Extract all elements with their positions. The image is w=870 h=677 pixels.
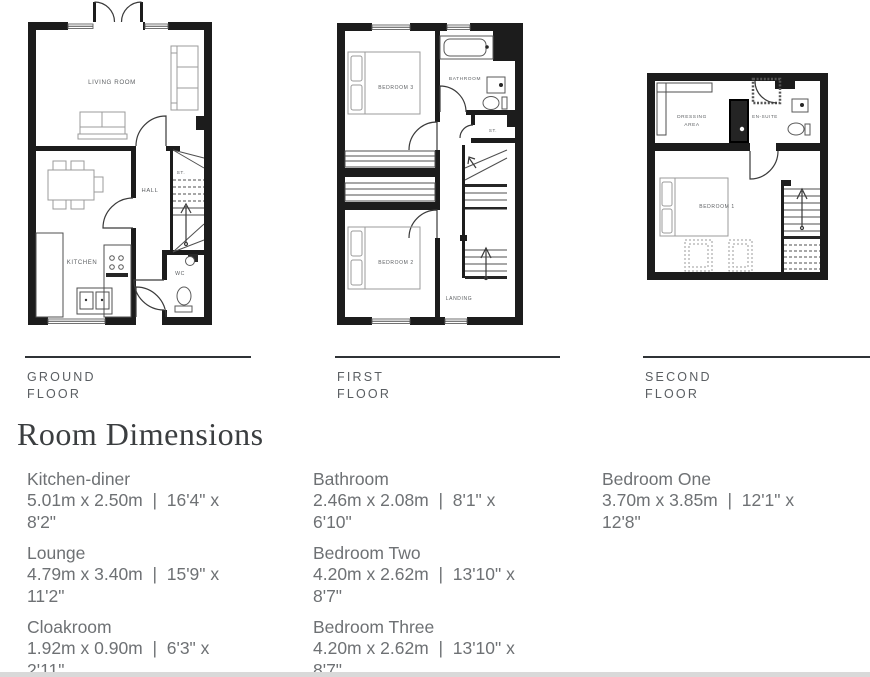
page-title: Room Dimensions	[17, 416, 264, 453]
first-floor-label: FIRST FLOOR	[337, 369, 391, 402]
stairs-icon	[173, 150, 204, 252]
stairs-icon	[460, 145, 507, 280]
room-name: Lounge	[27, 542, 287, 564]
room-label-bathroom: BATHROOM	[449, 76, 481, 82]
room-name: Bedroom One	[602, 468, 862, 490]
door-arcs	[750, 151, 778, 179]
basin-icon	[792, 99, 808, 112]
room-label-ensuite: EN-SUITE	[752, 114, 778, 119]
sink-unit-icon	[77, 288, 112, 314]
room-size: 5.01m x 2.50m | 16'4" x	[27, 490, 287, 512]
bed-icon	[348, 52, 420, 114]
room-size: 6'10"	[313, 512, 583, 534]
room-size: 4.20m x 2.62m | 13'10" x	[313, 638, 583, 660]
room-dimension-entry: Bathroom 2.46m x 2.08m | 8'1" x 6'10"	[313, 468, 583, 533]
dimensions-column-3: Bedroom One 3.70m x 3.85m | 12'1" x 12'8…	[602, 468, 862, 542]
french-doors-icon	[93, 2, 143, 22]
room-size: 4.20m x 2.62m | 13'10" x	[313, 564, 583, 586]
floor-label-line: FLOOR	[645, 386, 712, 403]
room-label-bedroom3: BEDROOM 3	[378, 85, 413, 91]
toilet-icon	[483, 97, 507, 110]
floor-label-line: SECOND	[645, 369, 712, 386]
floor-label-line: FIRST	[337, 369, 391, 386]
page-edge-bar	[0, 672, 870, 677]
basin-icon	[186, 254, 199, 266]
basin-icon	[487, 77, 505, 93]
floor-label-line: GROUND	[27, 369, 96, 386]
room-name: Cloakroom	[27, 616, 287, 638]
furniture-icon	[685, 240, 752, 271]
floorplan-page: LIVING ROOM HALL ST. KITCHEN WC	[0, 0, 870, 677]
toilet-icon	[788, 123, 810, 135]
room-label-dressing-2: AREA	[684, 122, 700, 128]
second-floor-plan: DRESSING AREA EN-SUITE BEDROOM 1	[645, 65, 830, 285]
room-name: Bathroom	[313, 468, 583, 490]
room-label-living: LIVING ROOM	[88, 79, 136, 86]
room-label-hall: HALL	[142, 188, 159, 194]
room-dimension-entry: Bedroom Two 4.20m x 2.62m | 13'10" x 8'7…	[313, 542, 583, 607]
stairs-icon	[781, 183, 820, 272]
room-name: Bedroom Two	[313, 542, 583, 564]
room-size: 11'2"	[27, 586, 287, 608]
second-floor-rule	[643, 356, 870, 358]
first-floor-rule	[335, 356, 560, 358]
room-label-bedroom2: BEDROOM 2	[378, 260, 413, 266]
room-label-store: ST.	[489, 128, 497, 133]
dining-table-icon	[48, 161, 103, 209]
window-icon	[48, 24, 168, 324]
first-floor-plan: BEDROOM 3 BATHROOM ST. BEDROOM 2 LANDING	[335, 10, 525, 335]
room-name: Bedroom Three	[313, 616, 583, 638]
room-label-wc: WC	[175, 271, 185, 277]
room-label-store: ST.	[177, 170, 186, 176]
bathtub-icon	[440, 36, 493, 59]
room-label-kitchen: KITCHEN	[67, 260, 98, 266]
room-size: 3.70m x 3.85m | 12'1" x	[602, 490, 862, 512]
cupboard-icon	[730, 100, 748, 142]
room-dimension-entry: Kitchen-diner 5.01m x 2.50m | 16'4" x 8'…	[27, 468, 287, 533]
sofa-icon	[171, 46, 198, 110]
room-size: 1.92m x 0.90m | 6'3" x	[27, 638, 287, 660]
dimensions-column-2: Bathroom 2.46m x 2.08m | 8'1" x 6'10" Be…	[313, 468, 583, 677]
floor-label-line: FLOOR	[27, 386, 96, 403]
dimensions-column-1: Kitchen-diner 5.01m x 2.50m | 16'4" x 8'…	[27, 468, 287, 677]
room-label-bedroom1: BEDROOM 1	[699, 204, 734, 210]
room-dimension-entry: Lounge 4.79m x 3.40m | 15'9" x 11'2"	[27, 542, 287, 607]
room-size: 2.46m x 2.08m | 8'1" x	[313, 490, 583, 512]
room-dimension-entry: Cloakroom 1.92m x 0.90m | 6'3" x 2'11"	[27, 616, 287, 677]
ground-floor-plan: LIVING ROOM HALL ST. KITCHEN WC	[20, 0, 220, 335]
room-name: Kitchen-diner	[27, 468, 287, 490]
ground-floor-rule	[25, 356, 251, 358]
kitchen-counter-icon	[36, 233, 131, 317]
room-size: 4.79m x 3.40m | 15'9" x	[27, 564, 287, 586]
room-dimension-entry: Bedroom One 3.70m x 3.85m | 12'1" x 12'8…	[602, 468, 862, 533]
room-size: 8'2"	[27, 512, 287, 534]
room-dimension-entry: Bedroom Three 4.20m x 2.62m | 13'10" x 8…	[313, 616, 583, 677]
second-floor-label: SECOND FLOOR	[645, 369, 712, 402]
room-size: 12'8"	[602, 512, 862, 534]
room-label-dressing-1: DRESSING	[677, 114, 707, 120]
ground-floor-label: GROUND FLOOR	[27, 369, 96, 402]
room-label-landing: LANDING	[446, 296, 472, 302]
toilet-icon	[175, 287, 192, 312]
floor-label-line: FLOOR	[337, 386, 391, 403]
room-size: 8'7"	[313, 586, 583, 608]
sofa-icon	[78, 112, 127, 139]
